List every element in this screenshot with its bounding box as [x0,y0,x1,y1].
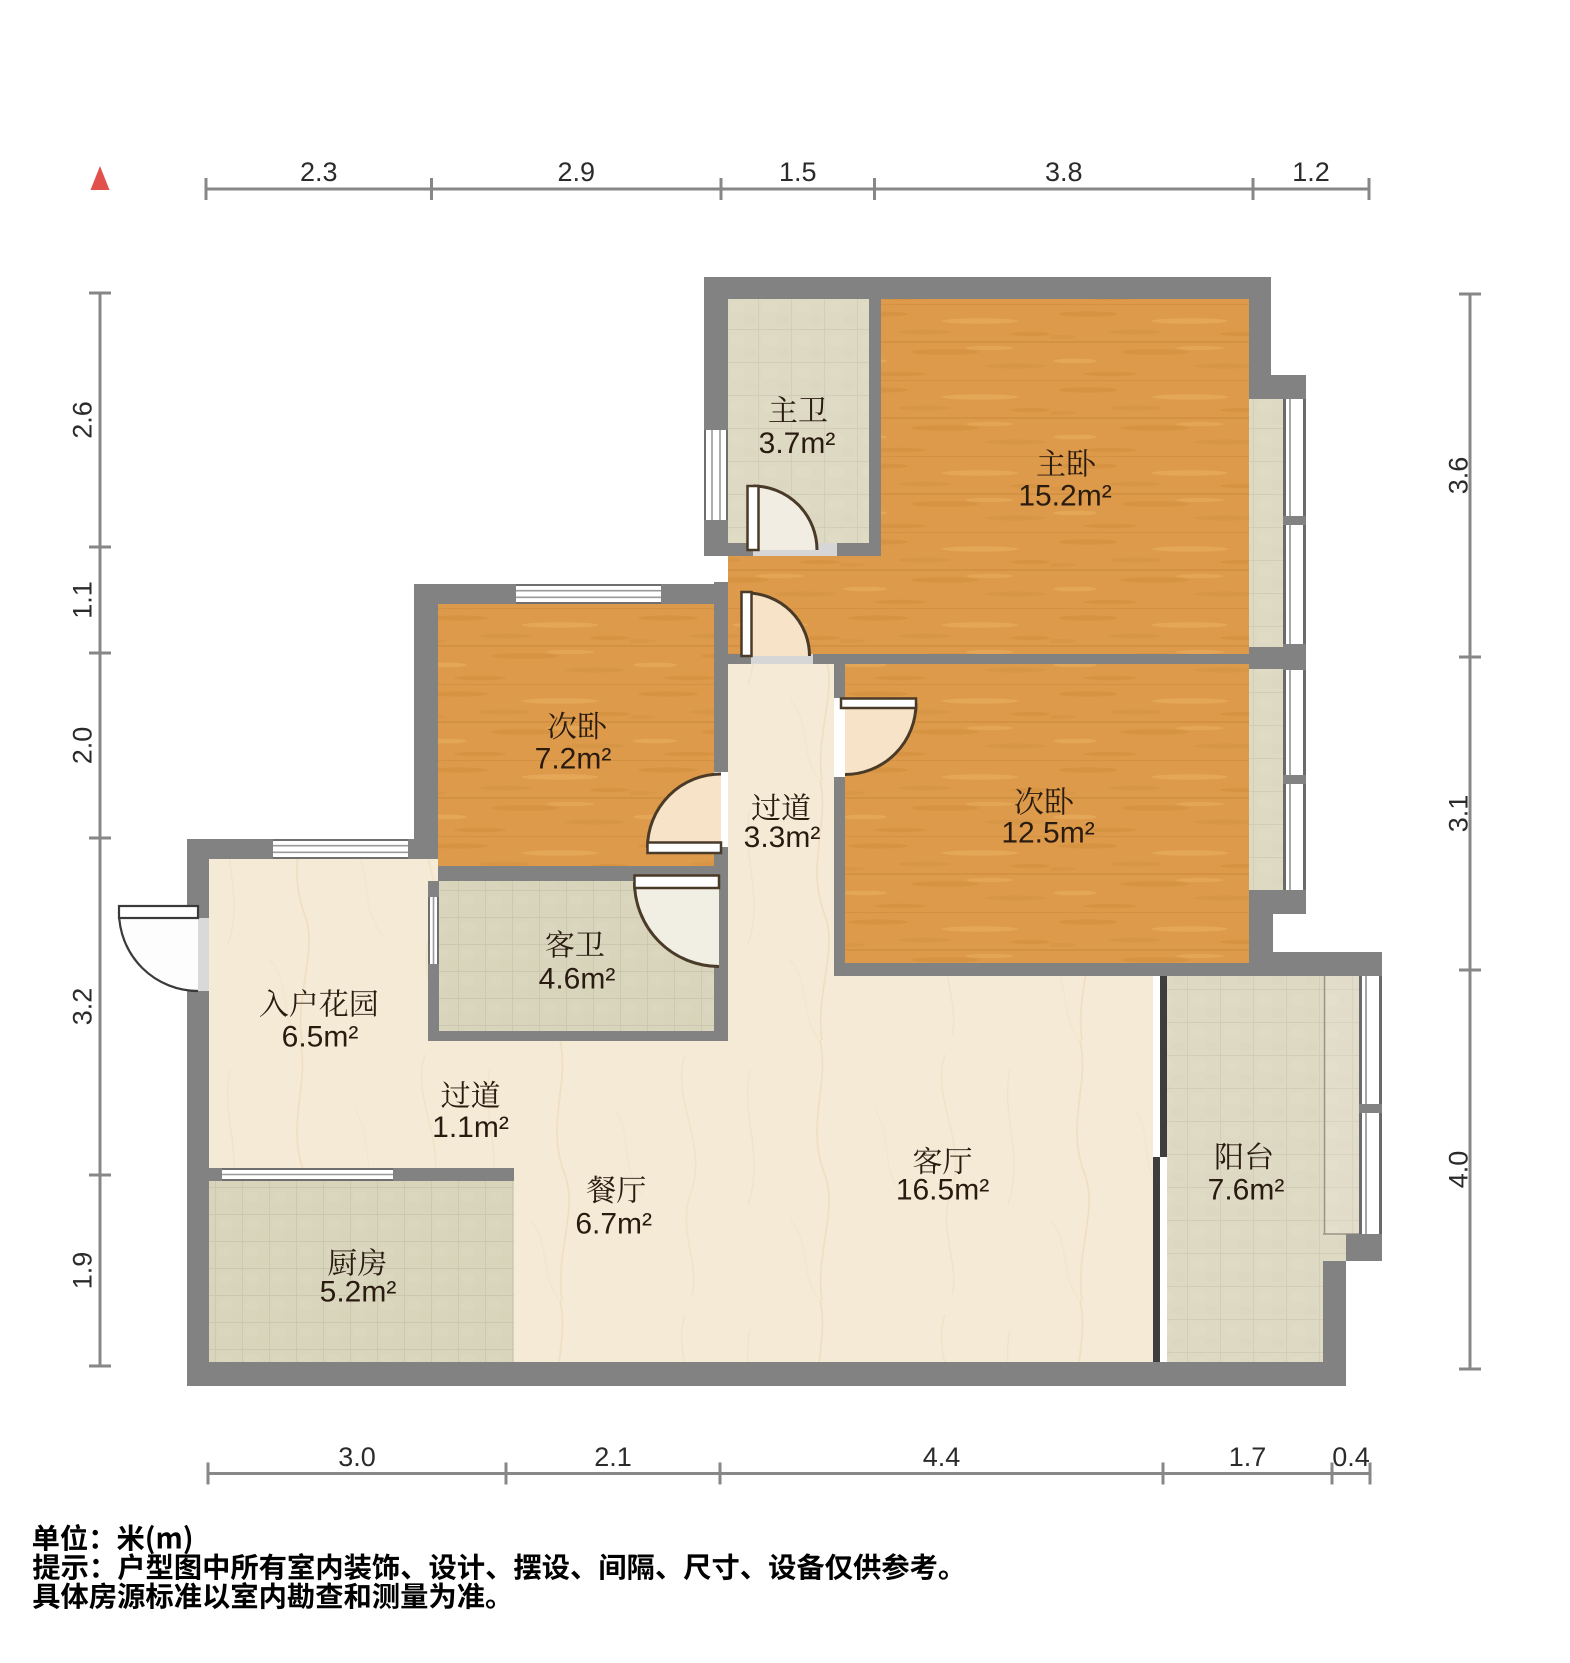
svg-text:3.8: 3.8 [1045,157,1083,187]
svg-text:7.2m²: 7.2m² [535,743,612,776]
svg-text:2.3: 2.3 [300,157,338,187]
svg-text:0.4: 0.4 [1332,1442,1370,1472]
svg-text:2.6: 2.6 [67,401,97,439]
svg-text:1.1: 1.1 [67,581,97,619]
svg-text:7.6m²: 7.6m² [1208,1174,1285,1207]
svg-text:3.3m²: 3.3m² [744,821,821,854]
svg-text:2.1: 2.1 [594,1442,632,1472]
svg-text:3.6: 3.6 [1443,457,1473,495]
svg-text:1.1m²: 1.1m² [432,1111,509,1144]
svg-text:2.9: 2.9 [558,157,596,187]
svg-text:1.5: 1.5 [779,157,817,187]
svg-text:1.2: 1.2 [1292,157,1330,187]
svg-text:12.5m²: 12.5m² [1001,817,1094,850]
svg-text:16.5m²: 16.5m² [896,1174,989,1207]
svg-text:2.0: 2.0 [67,727,97,765]
svg-text:3.7m²: 3.7m² [759,427,836,460]
svg-text:6.7m²: 6.7m² [575,1208,652,1241]
svg-text:4.0: 4.0 [1443,1151,1473,1189]
svg-text:5.2m²: 5.2m² [320,1276,397,1309]
svg-text:3.2: 3.2 [67,988,97,1026]
svg-text:3.0: 3.0 [338,1442,376,1472]
svg-text:15.2m²: 15.2m² [1018,480,1111,513]
svg-text:4.4: 4.4 [923,1442,961,1472]
svg-text:1.9: 1.9 [67,1252,97,1290]
svg-text:3.1: 3.1 [1443,795,1473,833]
svg-text:1.7: 1.7 [1229,1442,1267,1472]
svg-text:4.6m²: 4.6m² [539,963,616,996]
svg-text:6.5m²: 6.5m² [282,1021,359,1054]
